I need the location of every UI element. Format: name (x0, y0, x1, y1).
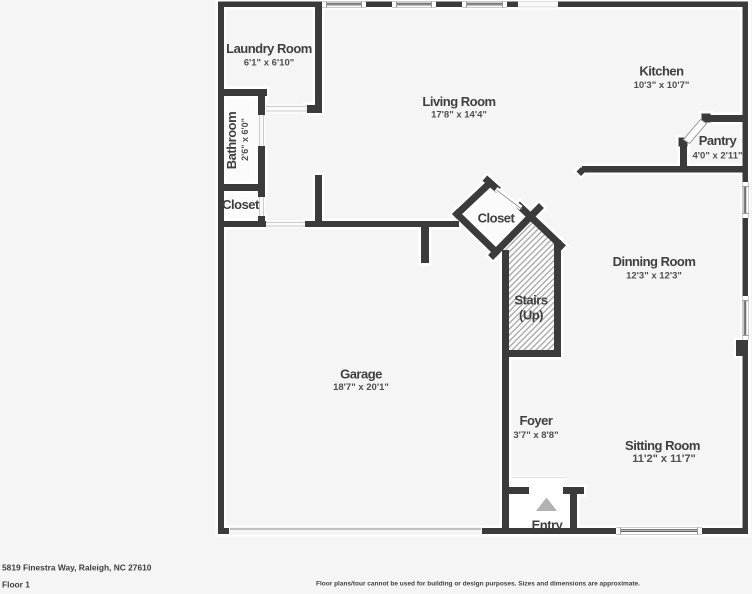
svg-text:Closet: Closet (478, 211, 516, 226)
svg-text:Dinning Room: Dinning Room (613, 254, 696, 269)
svg-text:3'7" x 8'8": 3'7" x 8'8" (513, 430, 558, 441)
svg-text:(Up): (Up) (519, 308, 543, 323)
svg-text:2'6" x 6'0": 2'6" x 6'0" (240, 118, 250, 161)
svg-text:5819 Finestra Way, Raleigh, NC: 5819 Finestra Way, Raleigh, NC 27610 (2, 563, 152, 573)
svg-text:Entry: Entry (532, 518, 564, 533)
svg-text:Sitting Room: Sitting Room (625, 438, 700, 453)
svg-text:Floor plans/tour cannot be use: Floor plans/tour cannot be used for buil… (316, 581, 640, 588)
svg-text:Pantry: Pantry (699, 133, 738, 148)
svg-text:11'2" x 11'7": 11'2" x 11'7" (632, 453, 695, 465)
svg-text:Garage: Garage (340, 367, 382, 382)
svg-text:17'8" x 14'4": 17'8" x 14'4" (431, 110, 487, 121)
svg-text:18'7" x 20'1": 18'7" x 20'1" (333, 382, 389, 393)
svg-text:Floor 1: Floor 1 (2, 580, 30, 590)
svg-text:Closet: Closet (222, 197, 260, 212)
svg-text:Foyer: Foyer (520, 413, 553, 428)
svg-text:Stairs: Stairs (514, 293, 547, 308)
svg-text:Bathroom: Bathroom (224, 112, 239, 169)
svg-text:4'0" x 2'11": 4'0" x 2'11" (693, 151, 743, 162)
svg-text:Kitchen: Kitchen (639, 64, 684, 79)
svg-text:Laundry Room: Laundry Room (226, 41, 312, 56)
svg-text:12'3" x 12'3": 12'3" x 12'3" (626, 271, 682, 282)
svg-text:10'3" x 10'7": 10'3" x 10'7" (634, 80, 690, 91)
svg-text:Living Room: Living Room (422, 94, 495, 109)
svg-text:6'1" x 6'10": 6'1" x 6'10" (244, 58, 295, 69)
